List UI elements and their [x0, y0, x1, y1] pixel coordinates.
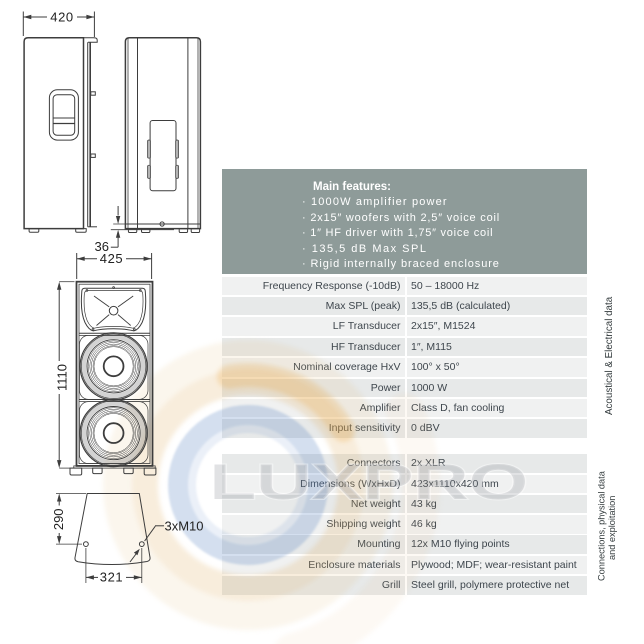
svg-text:Acoustical & Electrical data: Acoustical & Electrical data	[604, 296, 615, 415]
svg-text:290: 290	[51, 508, 66, 530]
svg-text:LUXPRO: LUXPRO	[209, 454, 528, 510]
svg-text:and exploitation: and exploitation	[607, 496, 617, 560]
svg-text:425: 425	[100, 251, 124, 266]
svg-text:3xM10: 3xM10	[165, 519, 204, 534]
svg-text:321: 321	[100, 570, 124, 585]
svg-text:Connections, physical data: Connections, physical data	[597, 470, 607, 581]
svg-text:1110: 1110	[54, 364, 69, 391]
svg-text:420: 420	[50, 10, 74, 25]
